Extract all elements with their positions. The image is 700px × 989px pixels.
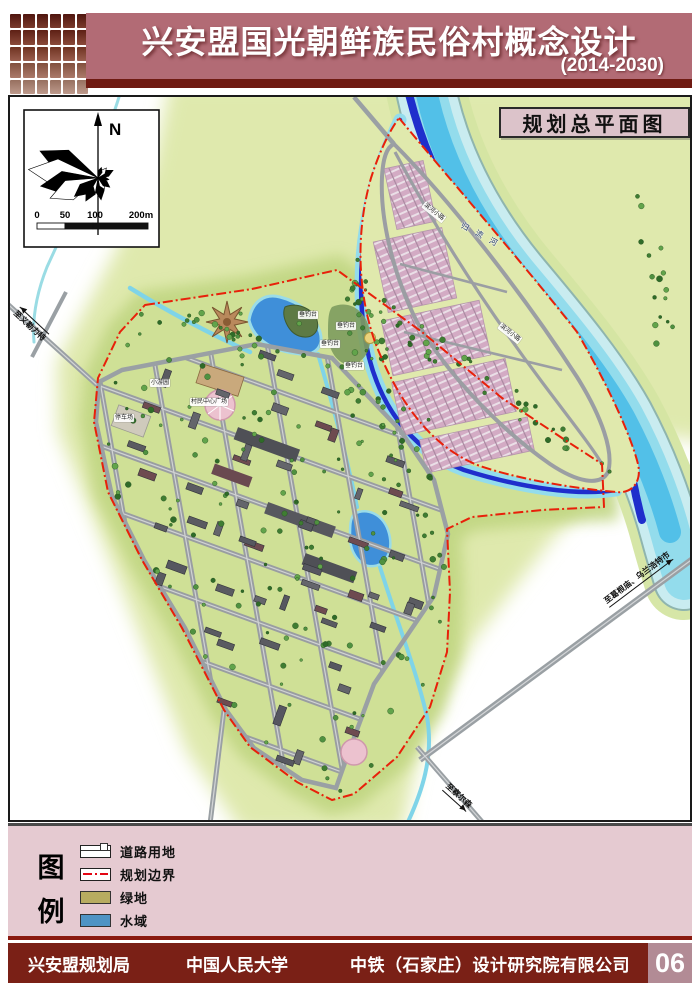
legend-item-water: 水域 <box>80 913 148 927</box>
map-drawing: N 0 50 100 200m <box>10 97 692 822</box>
legend: 图例 道路用地 规划边界 绿地 水域 <box>8 823 692 940</box>
header-band: 兴安盟国光朝鲜族民俗村概念设计 (2014-2030) <box>86 13 692 79</box>
org-design-institute: 中铁（石家庄）设计研究院有限公司 <box>350 951 630 976</box>
svg-text:50: 50 <box>60 210 71 221</box>
svg-text:0: 0 <box>34 210 39 221</box>
green-space-swatch <box>80 891 111 904</box>
institute-logo <box>10 14 88 94</box>
legend-item-green: 绿地 <box>80 890 148 904</box>
org-planning-bureau: 兴安盟规划局 <box>28 951 130 976</box>
header-underline <box>86 79 692 88</box>
legend-item-boundary: 规划边界 <box>80 867 176 881</box>
org-university: 中国人民大学 <box>186 951 288 976</box>
south-plaza <box>341 739 367 765</box>
plan-sheet: 兴安盟国光朝鲜族民俗村概念设计 (2014-2030) <box>0 0 700 989</box>
plan-period: (2014-2030) <box>560 55 664 77</box>
master-plan-map: N 0 50 100 200m 规划总平面图 归流河 滨河小路 滨河小路 垂钓台… <box>8 95 692 822</box>
legend-heading: 图例 <box>36 846 66 934</box>
road-symbol <box>80 845 111 858</box>
boundary-symbol <box>80 868 111 881</box>
footer: 兴安盟规划局 中国人民大学 中铁（石家庄）设计研究院有限公司 06 <box>8 943 692 983</box>
svg-text:100: 100 <box>87 210 103 221</box>
sheet-number: 06 <box>648 943 692 983</box>
north-label: N <box>109 120 121 139</box>
water-swatch <box>80 914 111 927</box>
svg-text:200m: 200m <box>129 210 153 221</box>
compass-box: N 0 50 100 200m <box>24 110 159 247</box>
legend-item-road: 道路用地 <box>80 844 176 858</box>
